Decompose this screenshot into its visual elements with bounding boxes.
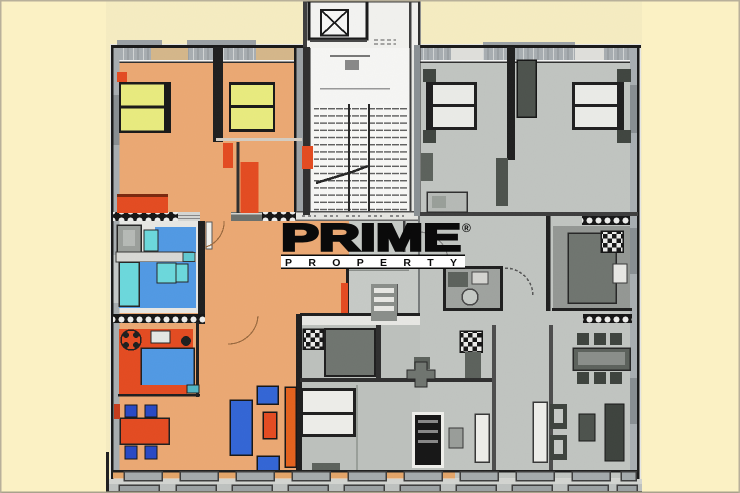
svg-text:®: ® [462, 221, 471, 235]
svg-text:PRIME: PRIME [281, 218, 461, 260]
